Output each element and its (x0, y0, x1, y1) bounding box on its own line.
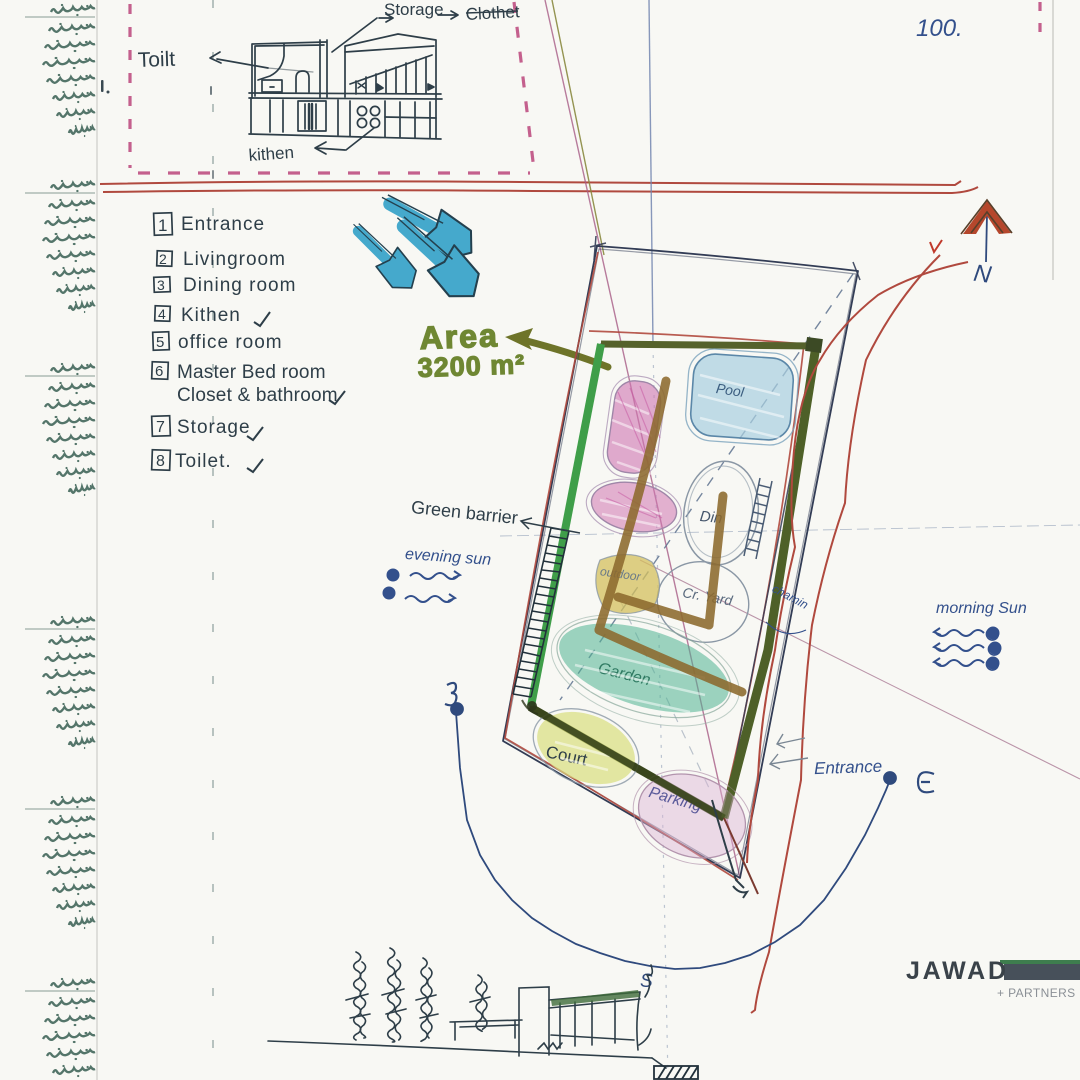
svg-text:Toilt: Toilt (137, 48, 175, 72)
svg-text:1: 1 (158, 216, 167, 235)
svg-text:5: 5 (156, 334, 164, 351)
svg-text:100.: 100. (916, 15, 963, 42)
svg-text:+ PARTNERS: + PARTNERS (997, 986, 1076, 1000)
svg-text:8: 8 (156, 453, 165, 470)
svg-text:Kithen: Kithen (181, 305, 241, 326)
svg-text:Closet & bathroom: Closet & bathroom (177, 385, 338, 406)
svg-text:Entrance: Entrance (814, 757, 883, 778)
svg-text:Storage: Storage (384, 0, 444, 19)
svg-text:office room: office room (178, 332, 283, 353)
svg-text:7: 7 (156, 419, 165, 436)
svg-text:Entrance: Entrance (181, 214, 265, 235)
svg-text:Toilet.: Toilet. (175, 451, 232, 472)
svg-text:Master Bed room: Master Bed room (177, 362, 326, 383)
svg-text:4: 4 (158, 306, 166, 322)
svg-text:Livingroom: Livingroom (183, 249, 286, 270)
svg-text:kithen: kithen (248, 143, 295, 165)
svg-text:Storage: Storage (177, 417, 251, 438)
svg-text:3: 3 (157, 277, 165, 293)
svg-text:2: 2 (159, 251, 167, 267)
svg-text:6: 6 (155, 363, 163, 380)
svg-text:morning Sun: morning Sun (936, 600, 1027, 617)
svg-text:3200 m²: 3200 m² (417, 349, 526, 383)
svg-text:Dining room: Dining room (183, 275, 296, 296)
